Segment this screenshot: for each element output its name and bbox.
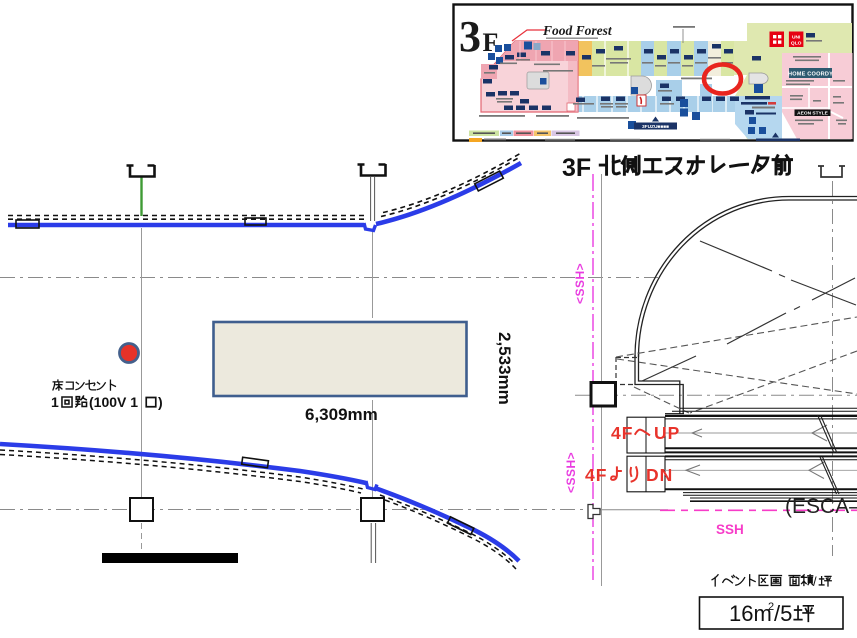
svg-text:Food Forest: Food Forest: [542, 23, 613, 38]
svg-text:/: /: [813, 574, 817, 589]
svg-text:UP: UP: [654, 423, 680, 443]
svg-text:16m: 16m: [729, 601, 772, 626]
svg-text:<SSH>: <SSH>: [573, 263, 587, 304]
svg-text:3F: 3F: [562, 154, 591, 182]
svg-text:<SSH>: <SSH>: [564, 452, 578, 493]
svg-text:DN: DN: [646, 465, 673, 485]
svg-text:): ): [158, 394, 163, 410]
svg-text:UNI: UNI: [792, 35, 801, 41]
svg-text:(100V 1: (100V 1: [89, 394, 138, 410]
svg-text:4F: 4F: [585, 465, 607, 485]
svg-text:3: 3: [459, 12, 481, 61]
svg-text:QLO: QLO: [791, 41, 802, 47]
svg-text:6,309mm: 6,309mm: [305, 405, 378, 424]
svg-text:F: F: [483, 28, 499, 57]
svg-text:/5: /5: [774, 601, 792, 626]
svg-text:(ESCA–: (ESCA–: [785, 495, 857, 518]
svg-text:HOME COORDY: HOME COORDY: [788, 71, 833, 77]
svg-text:2,533mm: 2,533mm: [495, 332, 514, 405]
svg-text:SSH: SSH: [716, 522, 744, 537]
svg-text:1: 1: [51, 394, 59, 410]
svg-text:4F: 4F: [611, 423, 633, 443]
svg-text:3FUZU■■■■: 3FUZU■■■■: [642, 124, 669, 130]
svg-text:AEON STYLE: AEON STYLE: [797, 111, 828, 117]
